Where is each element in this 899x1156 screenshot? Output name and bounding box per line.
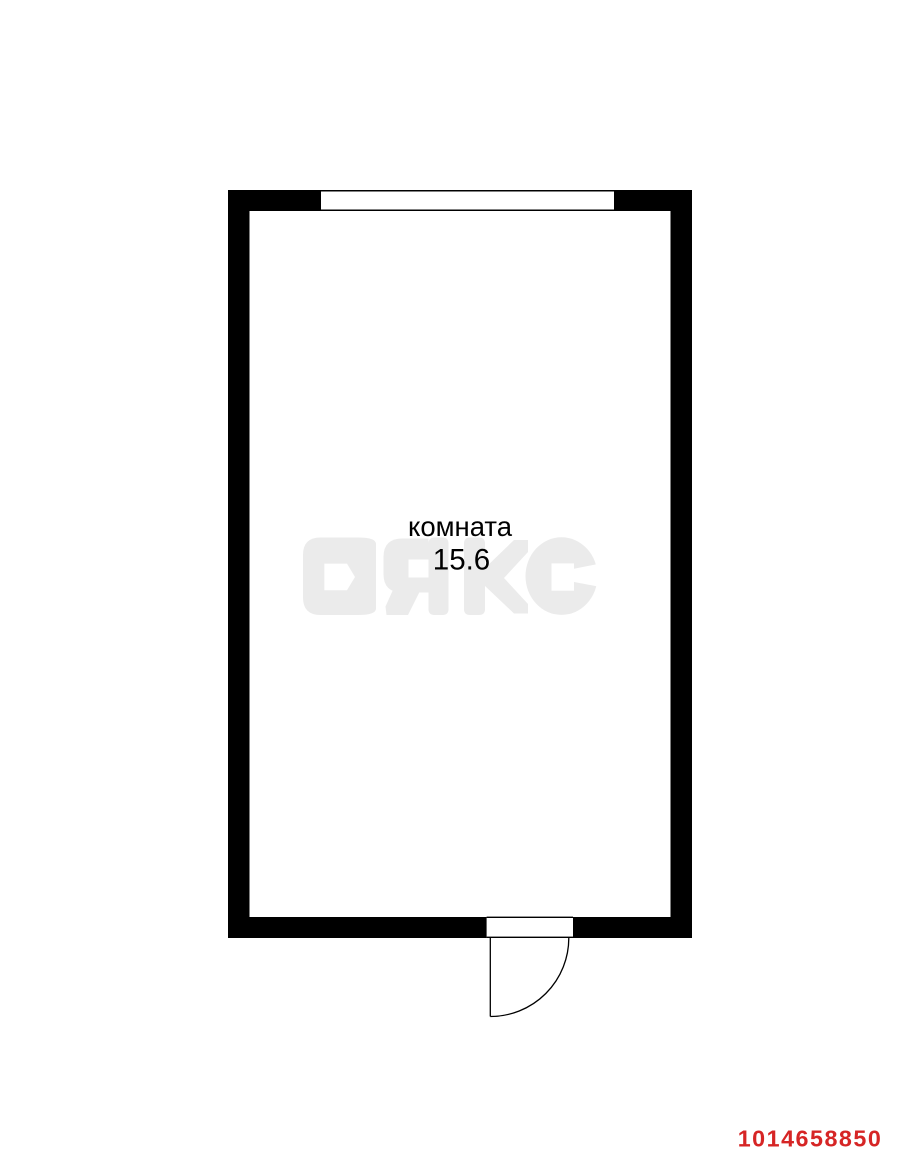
svg-text:комната: комната bbox=[408, 511, 513, 542]
svg-text:15.6: 15.6 bbox=[433, 544, 490, 577]
svg-text:1014658850: 1014658850 bbox=[738, 1126, 883, 1152]
